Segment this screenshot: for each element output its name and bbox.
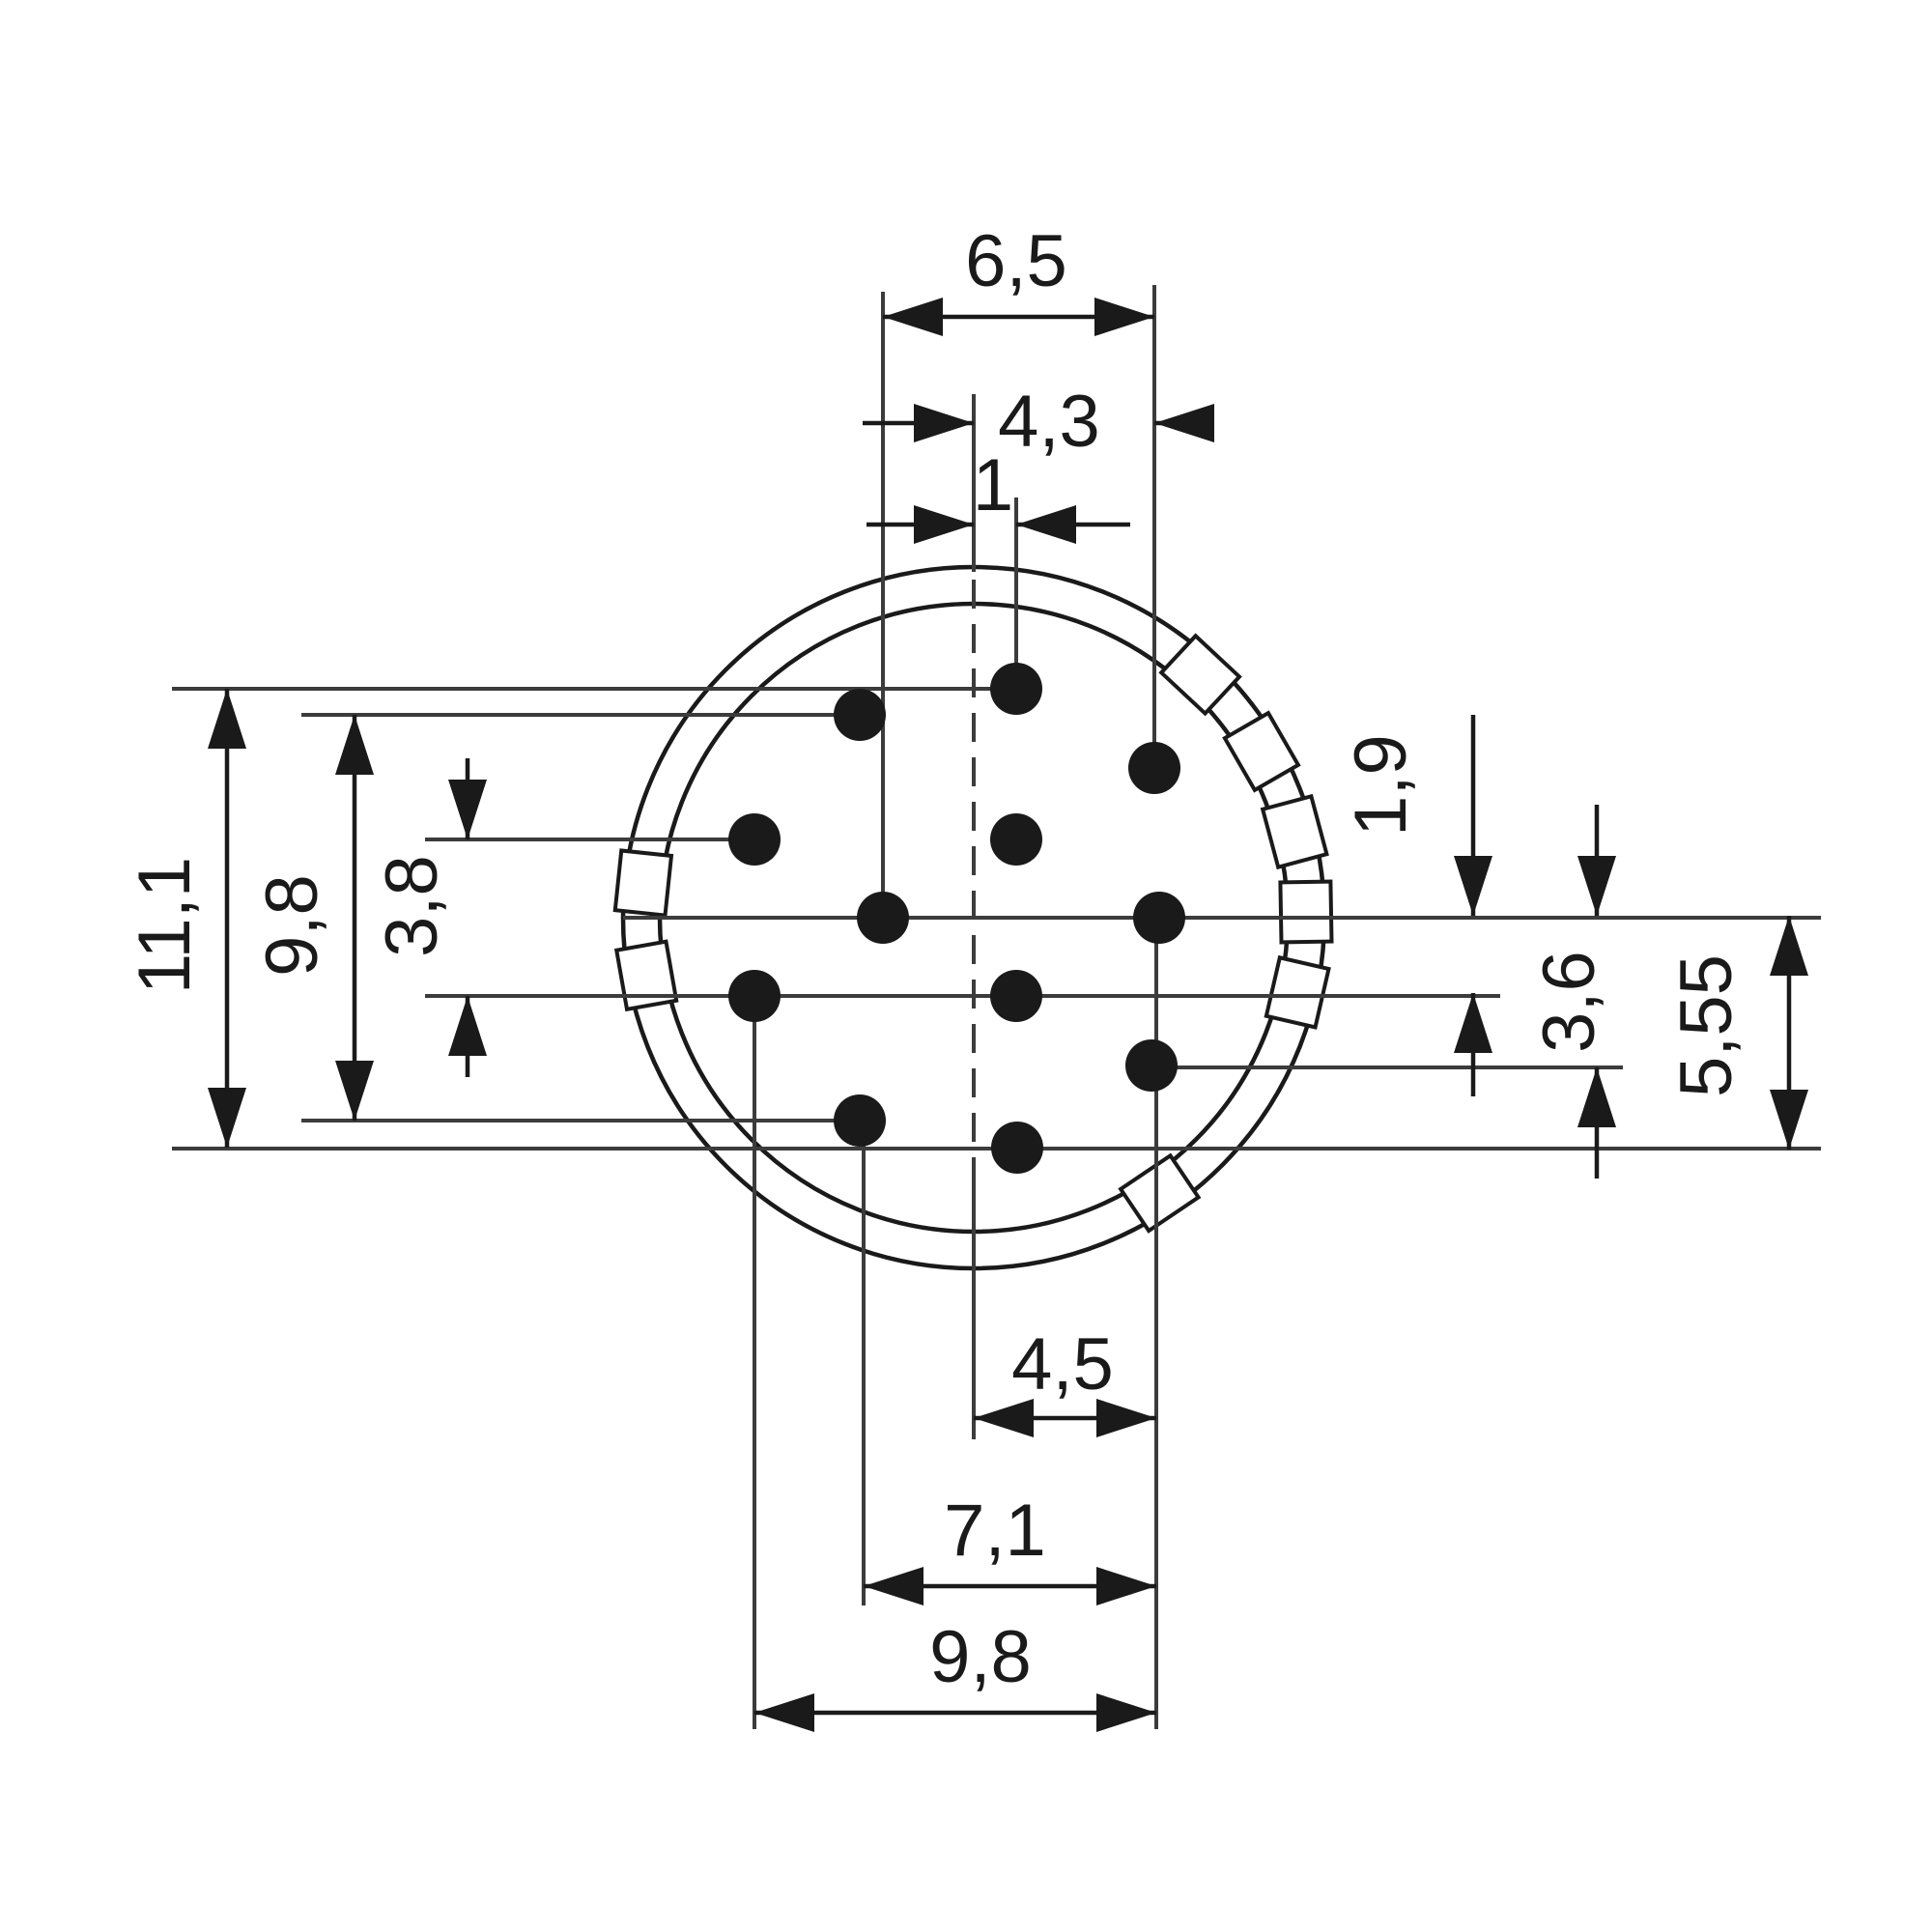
pin-7 (1133, 892, 1185, 944)
pin-4 (728, 813, 781, 866)
pin-8 (728, 970, 781, 1022)
keying-notch (616, 942, 676, 1009)
dim-label-9: 4,5 (1011, 1323, 1114, 1406)
connector-dimensional-drawing: 6,54,3111,19,83,81,93,65,554,57,19,8 (0, 0, 1932, 1932)
dim-label-5: 3,8 (371, 855, 453, 957)
dim-label-4: 9,8 (251, 874, 333, 977)
keying-notch (1280, 882, 1331, 943)
dim-label-7: 3,6 (1528, 951, 1610, 1053)
pin-5 (990, 813, 1042, 866)
keying-notch-rect (615, 850, 671, 915)
dim-label-6: 1,9 (1340, 734, 1422, 837)
pin-11 (834, 1094, 886, 1147)
pin-2 (834, 689, 886, 741)
dim-label-3: 11,1 (124, 857, 206, 994)
pin-12 (991, 1122, 1043, 1174)
keying-notch (615, 850, 671, 915)
pin-6 (857, 892, 909, 944)
keying-notch-rect (1266, 957, 1329, 1027)
dim-label-0: 6,5 (965, 220, 1067, 302)
dim-label-2: 1 (973, 444, 1013, 526)
dim-label-8: 5,55 (1665, 954, 1747, 1097)
pin-3 (1128, 742, 1180, 794)
drawing-area: 6,54,3111,19,83,81,93,65,554,57,19,8 (0, 0, 1932, 1932)
pin-1 (990, 663, 1042, 715)
pin-9 (990, 970, 1042, 1022)
keying-notch (1266, 957, 1329, 1027)
pin-10 (1125, 1039, 1178, 1092)
dim-label-10: 7,1 (944, 1490, 1046, 1572)
dim-label-11: 9,8 (929, 1616, 1032, 1698)
keying-notch-rect (1280, 882, 1331, 943)
keying-notch-rect (616, 942, 676, 1009)
